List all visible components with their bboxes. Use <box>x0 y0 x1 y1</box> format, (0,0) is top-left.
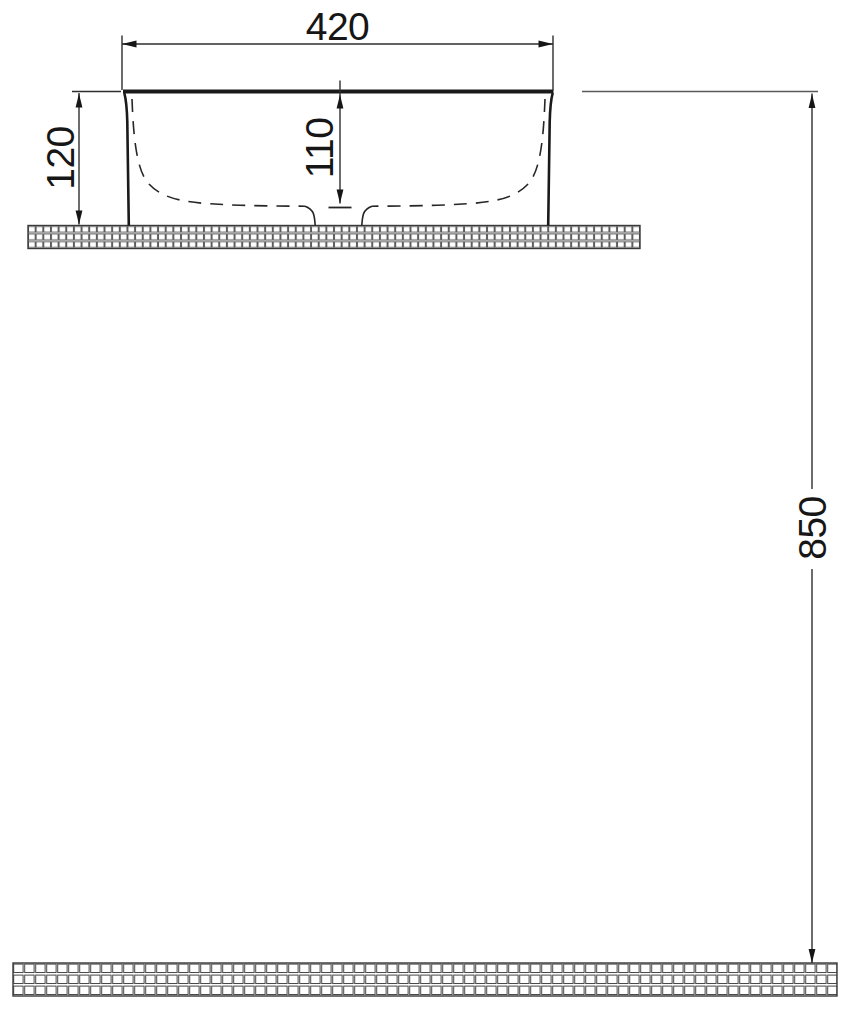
floor-slab-hatch <box>13 963 837 996</box>
countertop-slab-hatch <box>28 226 640 249</box>
dim-110-label: 110 <box>298 118 341 179</box>
technical-drawing: 420 120 110 850 <box>0 0 852 1020</box>
drawing-svg: 420 120 110 850 <box>0 0 852 1020</box>
dim-420-label: 420 <box>306 5 370 48</box>
dim-850-label: 850 <box>791 496 834 560</box>
dim-120-label: 120 <box>39 126 82 190</box>
